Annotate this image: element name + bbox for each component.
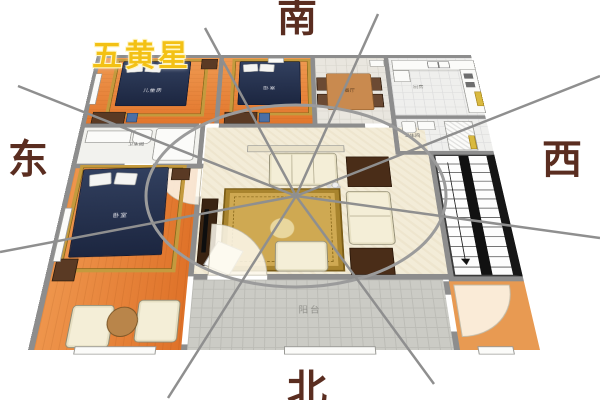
- top-bed: 卧室: [237, 62, 301, 105]
- floorplan: 儿童房 卧室 餐厅 厨房: [28, 55, 540, 350]
- window-sill: [477, 346, 515, 354]
- children-bedroom-label: 儿童房: [143, 87, 163, 93]
- cushion-line: [291, 155, 292, 184]
- pillow: [89, 172, 111, 187]
- armchair: [133, 300, 181, 343]
- direction-west-label: 西: [542, 140, 582, 180]
- dresser: [91, 112, 126, 124]
- toilet: [401, 121, 417, 133]
- bathroom-left-label: 卫生间: [128, 143, 145, 147]
- dining-label: 餐厅: [344, 89, 355, 93]
- bathroom-right-label: 卫生间: [404, 134, 420, 138]
- stove: [463, 73, 473, 78]
- console: [247, 145, 344, 152]
- window-sill: [73, 346, 156, 354]
- side-table: [346, 157, 392, 187]
- sink: [417, 121, 436, 130]
- sofa-chaise: [346, 191, 397, 245]
- pillow: [259, 64, 275, 72]
- bath-counter: [85, 131, 133, 143]
- five-yellow-star-label: 五黄星: [92, 42, 191, 72]
- wardrobe: [201, 59, 218, 69]
- master-bed: 卧室: [68, 167, 169, 258]
- wall: [219, 124, 366, 128]
- kitchen-label: 厨房: [413, 85, 424, 89]
- storage-box: [259, 113, 270, 122]
- cushion-line: [350, 216, 390, 217]
- wall: [85, 124, 199, 128]
- wall: [193, 274, 207, 280]
- sink: [438, 62, 450, 69]
- bathtub: [152, 128, 197, 160]
- pillow: [243, 64, 258, 73]
- direction-south-label: 南: [277, 0, 317, 38]
- master-bedroom-label: 卧室: [112, 211, 128, 219]
- dining-table: 餐厅: [326, 73, 375, 110]
- feng-shui-floorplan-figure: 儿童房 卧室 餐厅 厨房: [0, 0, 600, 400]
- wall: [448, 276, 524, 281]
- armchair: [275, 241, 329, 272]
- storage-box: [126, 113, 139, 122]
- bedroom-top-label: 卧室: [263, 85, 276, 91]
- side-table: [349, 248, 395, 275]
- tv: [201, 209, 209, 252]
- direction-north-label: 北: [287, 370, 327, 400]
- pillow: [113, 172, 138, 185]
- direction-east-label: 东: [8, 140, 48, 180]
- balcony-label: 阳台: [298, 307, 321, 316]
- wall-marker: [268, 58, 284, 63]
- nightstand: [171, 168, 191, 180]
- wall: [391, 115, 486, 118]
- cushion-line: [313, 155, 315, 184]
- sofa-three-seat: [269, 153, 339, 186]
- stair-arrow-down-icon: [461, 259, 471, 265]
- wall: [267, 274, 449, 280]
- stove: [465, 82, 475, 87]
- dresser: [224, 112, 258, 124]
- cabinet: [369, 60, 385, 67]
- window-sill: [284, 346, 376, 354]
- dresser: [52, 259, 79, 282]
- fridge: [393, 70, 411, 82]
